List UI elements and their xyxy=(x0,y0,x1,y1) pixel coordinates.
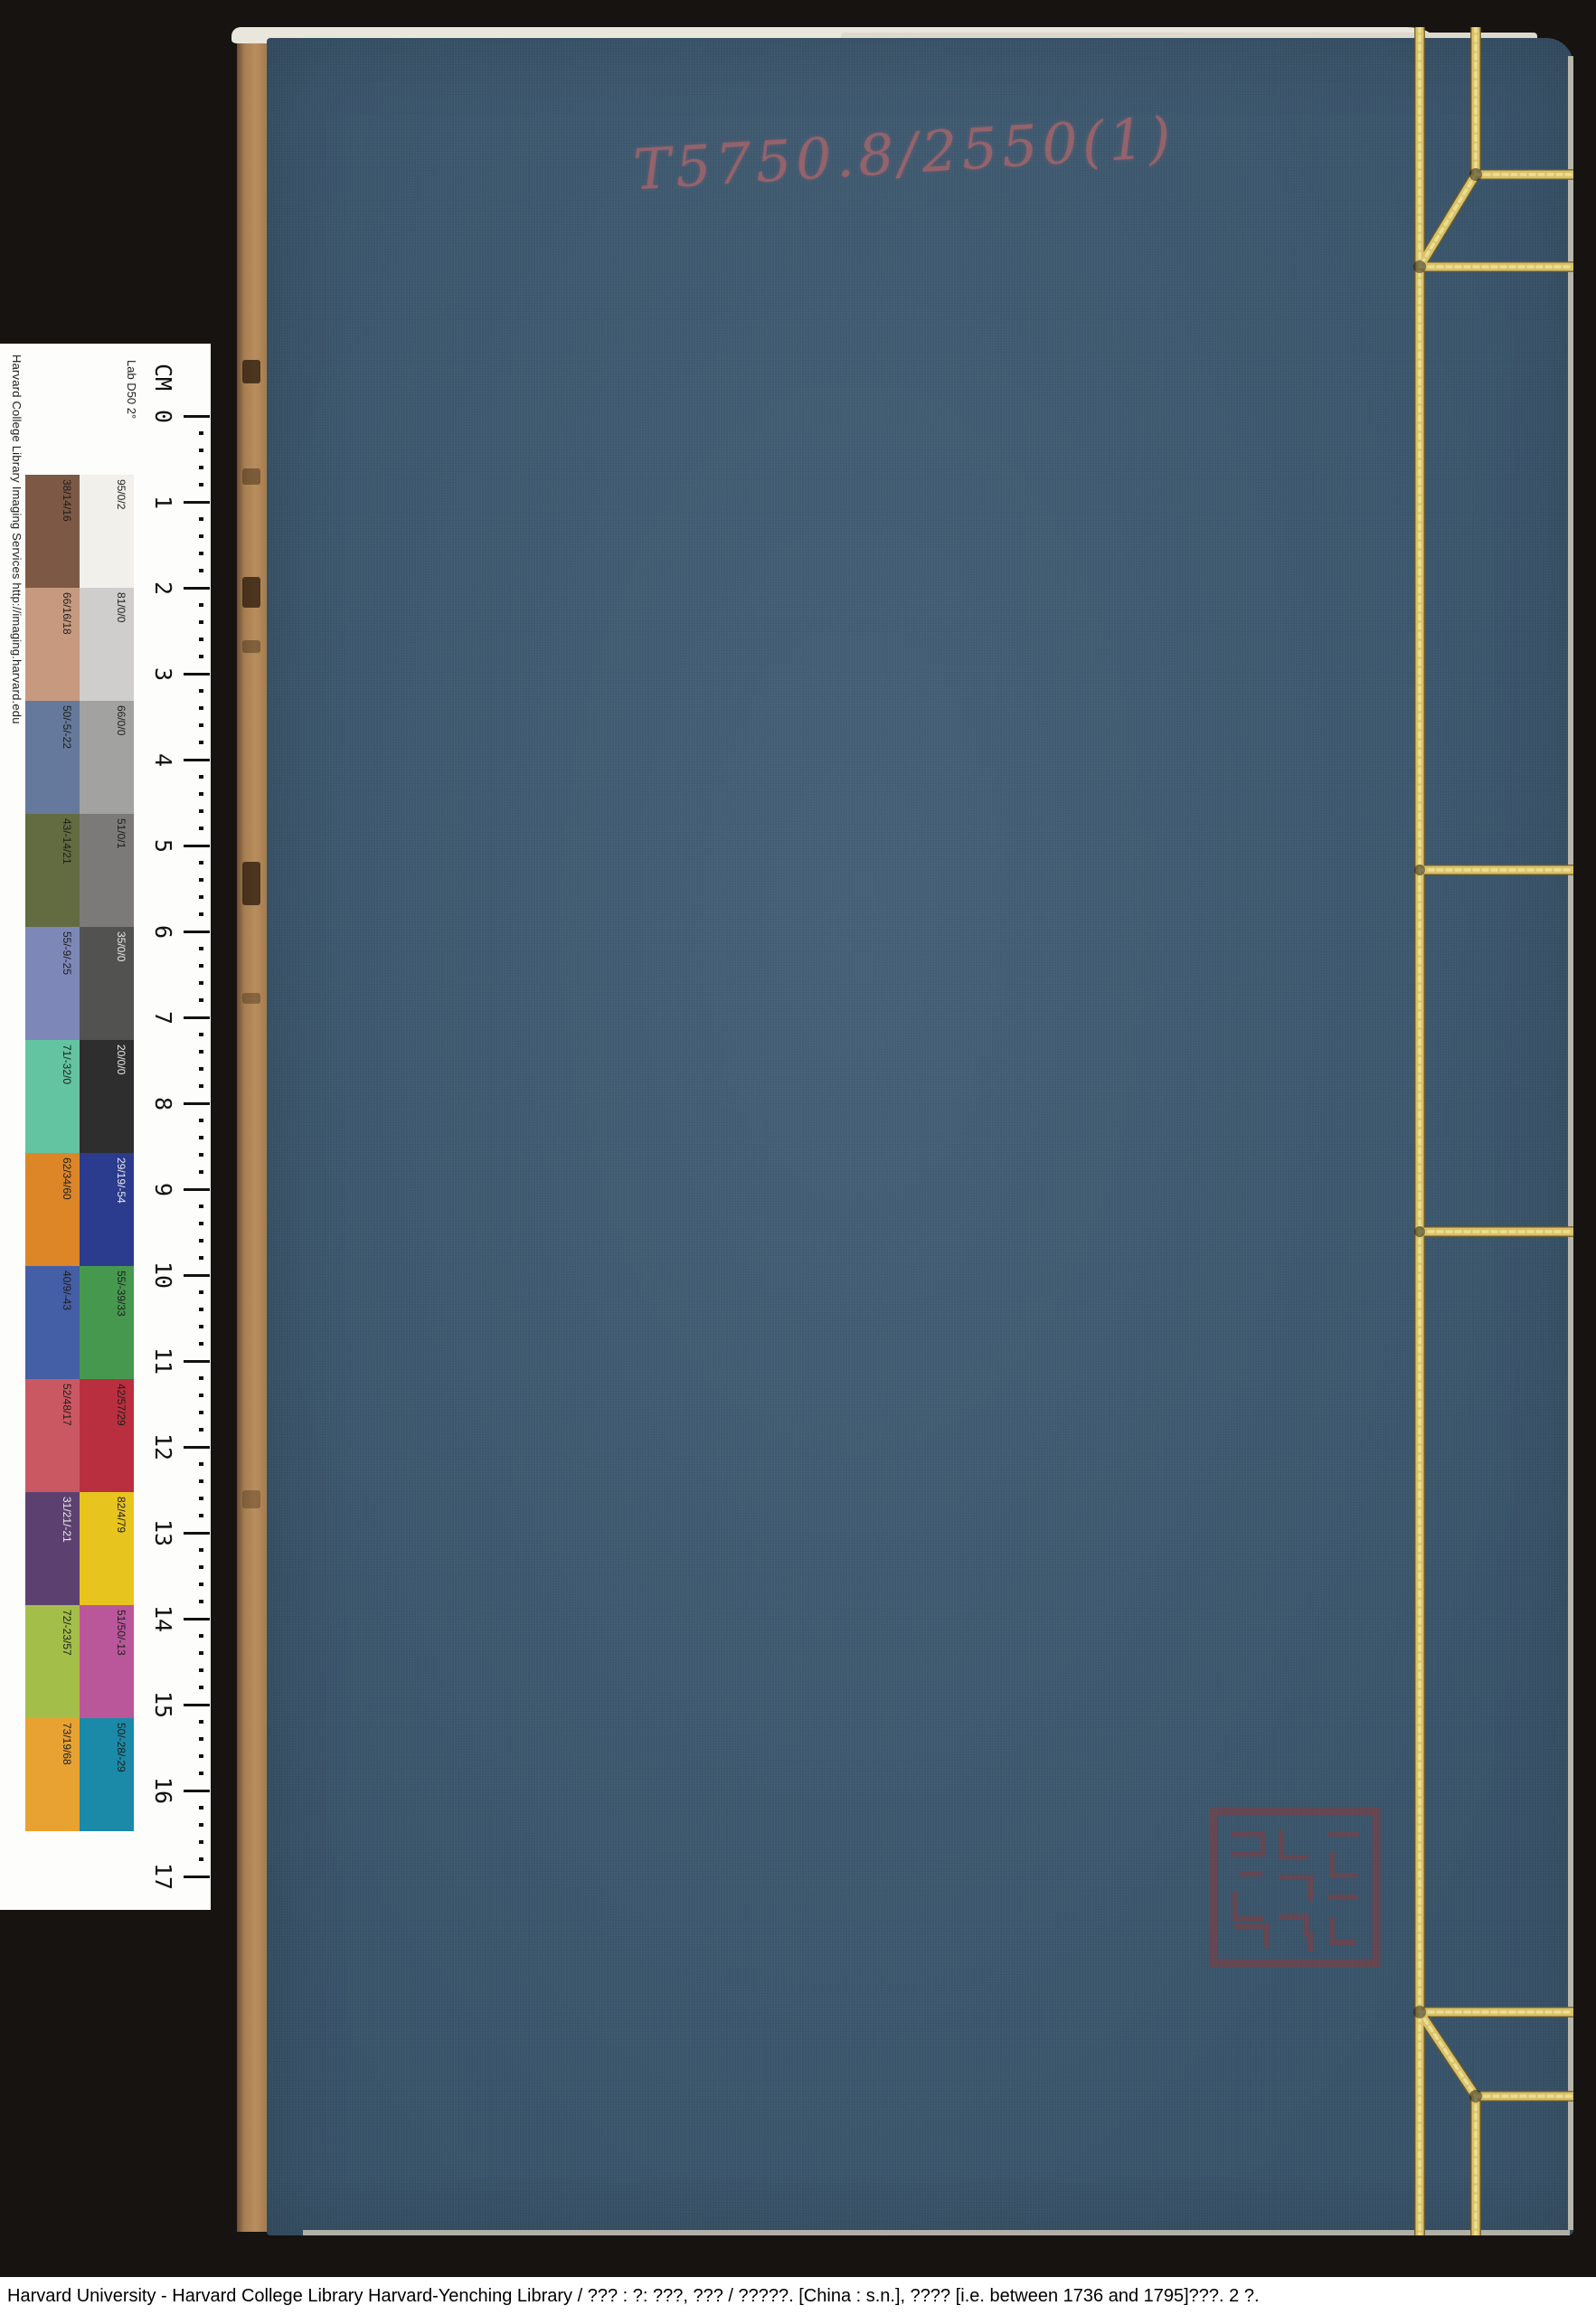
color-patch-label: 40/9/-43 xyxy=(61,1271,72,1310)
color-patch-label: 50/-28/-29 xyxy=(115,1723,127,1772)
ruler-tick-dot xyxy=(199,1170,203,1174)
ruler-tick-dot xyxy=(199,1857,203,1861)
ruler-tick-dot xyxy=(199,1548,203,1552)
ruler-tick-dot xyxy=(199,1840,203,1844)
ruler-number: 11 xyxy=(151,1347,175,1375)
ruler-tick-dot xyxy=(199,1033,203,1036)
ruler-tick-dot xyxy=(199,1308,203,1311)
color-patch-label: 55/-9/-25 xyxy=(61,931,72,975)
ruler-tick-dot xyxy=(199,1222,203,1225)
color-patch: 82/4/79 xyxy=(80,1492,134,1605)
ruler-tick-dot xyxy=(199,603,203,607)
ruler-tick xyxy=(184,415,210,418)
ruler-tick-dot xyxy=(199,947,203,950)
ruler-tick-dot xyxy=(199,1325,203,1328)
ruler-tick-dot xyxy=(199,1686,203,1689)
color-patch: 72/-23/57 xyxy=(25,1605,80,1718)
ruler-tick-dot xyxy=(199,655,203,658)
color-patch-label: 71/-32/0 xyxy=(61,1044,72,1084)
color-patch: 50/-5/-22 xyxy=(25,701,80,814)
ruler-tick-dot xyxy=(199,998,203,1002)
ruler-tick-dot xyxy=(199,1462,203,1466)
color-patch: 50/-28/-29 xyxy=(80,1718,134,1831)
ruler-number: 15 xyxy=(151,1691,175,1718)
color-patch: 51/0/1 xyxy=(80,814,134,927)
ruler-tick-dot xyxy=(199,1497,203,1500)
binding-threads xyxy=(226,27,1573,2235)
ruler-tick xyxy=(184,1102,210,1105)
ruler-tick-dot xyxy=(199,1342,203,1346)
ruler-tick-dot xyxy=(199,1754,203,1758)
ruler-unit-label: CM xyxy=(151,364,175,391)
ruler-tick-dot xyxy=(199,706,203,710)
color-patch-label: 73/19/68 xyxy=(61,1723,72,1765)
ruler-tick-dot xyxy=(199,1651,203,1655)
ruler-tick-dot xyxy=(199,1376,203,1380)
ruler-number: 5 xyxy=(151,839,175,853)
ruler-tick xyxy=(184,1360,210,1363)
color-patch: 31/21/-21 xyxy=(25,1492,80,1605)
caption-bar: Harvard University - Harvard College Lib… xyxy=(0,2277,1596,2315)
color-patch-label: 29/19/-54 xyxy=(115,1157,127,1204)
color-patch-label: 20/0/0 xyxy=(115,1044,127,1074)
ruler-tick-dot xyxy=(199,620,203,624)
ruler-tick-dot xyxy=(199,1256,203,1260)
ruler-number: 8 xyxy=(151,1097,175,1110)
ruler-number: 2 xyxy=(151,581,175,595)
ruler-tick-dot xyxy=(199,517,203,521)
ruler-tick-dot xyxy=(199,861,203,865)
color-patch: 55/-39/33 xyxy=(80,1266,134,1379)
color-patch: 38/14/16 xyxy=(25,475,80,588)
ruler-tick-dot xyxy=(199,1084,203,1088)
color-patch: 42/57/29 xyxy=(80,1379,134,1492)
ruler-tick-dot xyxy=(199,1634,203,1638)
ruler-number: 13 xyxy=(151,1519,175,1546)
digitized-scan: T5750.8/2550(1) xyxy=(0,0,1596,2315)
ruler-tick xyxy=(184,845,210,847)
ruler-tick-dot xyxy=(199,1668,203,1672)
ruler-tick-dot xyxy=(199,1050,203,1054)
ruler-number: 17 xyxy=(151,1863,175,1890)
ruler-tick xyxy=(184,1790,210,1792)
color-patch-label: 82/4/79 xyxy=(115,1497,127,1533)
color-patch-label: 66/0/0 xyxy=(115,705,127,735)
book: T5750.8/2550(1) xyxy=(226,27,1573,2235)
ruler-tick-dot xyxy=(199,449,203,452)
ruler-tick xyxy=(184,673,210,676)
ruler-tick xyxy=(184,931,210,933)
ruler-tick-dot xyxy=(199,895,203,899)
imaging-services-attribution: Harvard College Library Imaging Services… xyxy=(10,354,23,724)
ruler-tick-dot xyxy=(199,483,203,487)
ruler-tick xyxy=(184,1704,210,1706)
color-patch-label: 31/21/-21 xyxy=(61,1497,72,1543)
color-patch-label: 55/-39/33 xyxy=(115,1271,127,1317)
ruler-tick-dot xyxy=(199,552,203,555)
ruler-tick-dot xyxy=(199,981,203,985)
ruler-tick-dot xyxy=(199,534,203,538)
color-patch-label: 42/57/29 xyxy=(115,1384,127,1426)
ruler-tick-dot xyxy=(199,1290,203,1294)
color-patch-label: 35/0/0 xyxy=(115,931,127,961)
ruler-tick-dot xyxy=(199,1823,203,1827)
calibration-target: Harvard College Library Imaging Services… xyxy=(0,344,211,1910)
color-patch-label: 81/0/0 xyxy=(115,592,127,622)
color-patches: 38/14/1695/0/266/16/1881/0/050/-5/-2266/… xyxy=(25,475,134,1831)
color-patch: 95/0/2 xyxy=(80,475,134,588)
ruler-tick-dot xyxy=(199,878,203,882)
ruler-number: 16 xyxy=(151,1777,175,1804)
caption-text: Harvard University - Harvard College Lib… xyxy=(0,2286,1260,2307)
ruler-tick-dot xyxy=(199,1514,203,1517)
color-patch-label: 62/34/60 xyxy=(61,1157,72,1200)
ruler-tick xyxy=(184,1274,210,1277)
ruler-tick-dot xyxy=(199,964,203,968)
ruler-tick-dot xyxy=(199,689,203,693)
ruler-tick-dot xyxy=(199,1565,203,1569)
ruler-tick-dot xyxy=(199,1153,203,1157)
ruler-tick-dot xyxy=(199,638,203,641)
ruler-tick-dot xyxy=(199,723,203,727)
ruler-tick-dot xyxy=(199,827,203,830)
ruler-tick-dot xyxy=(199,1428,203,1432)
ruler-tick-dot xyxy=(199,1136,203,1139)
ruler-tick-dot xyxy=(199,1411,203,1414)
ruler-number: 10 xyxy=(151,1261,175,1289)
colorspace-label: Lab D50 2° xyxy=(125,360,137,419)
color-patch: 29/19/-54 xyxy=(80,1153,134,1266)
color-patch: 73/19/68 xyxy=(25,1718,80,1831)
ruler-tick-dot xyxy=(199,1772,203,1775)
ruler-tick-dot xyxy=(199,1239,203,1243)
color-patch: 20/0/0 xyxy=(80,1040,134,1153)
color-patch: 62/34/60 xyxy=(25,1153,80,1266)
ruler-number: 7 xyxy=(151,1011,175,1025)
ruler-tick xyxy=(184,587,210,590)
ruler-number: 1 xyxy=(151,496,175,509)
ruler-tick-dot xyxy=(199,1720,203,1724)
ruler-number: 14 xyxy=(151,1605,175,1632)
ruler-tick-dot xyxy=(199,1067,203,1071)
ruler-number: 12 xyxy=(151,1433,175,1460)
color-patch: 66/0/0 xyxy=(80,701,134,814)
color-patch-label: 43/-14/21 xyxy=(61,818,72,865)
ruler-tick xyxy=(184,501,210,504)
color-patch-label: 52/48/17 xyxy=(61,1384,72,1426)
ruler-number: 0 xyxy=(151,410,175,423)
ruler-tick-dot xyxy=(199,431,203,435)
ruler-number: 9 xyxy=(151,1183,175,1196)
ruler-tick-dot xyxy=(199,775,203,779)
ruler-tick-dot xyxy=(199,1479,203,1483)
ruler-tick xyxy=(184,1532,210,1535)
ruler-tick-dot xyxy=(199,792,203,796)
ruler-number: 4 xyxy=(151,753,175,767)
color-patch-label: 50/-5/-22 xyxy=(61,705,72,749)
color-patch: 43/-14/21 xyxy=(25,814,80,927)
ruler-tick-dot xyxy=(199,912,203,916)
ruler-tick-dot xyxy=(199,741,203,744)
ruler-tick-dot xyxy=(199,1583,203,1586)
color-patch: 66/16/18 xyxy=(25,588,80,701)
color-patch: 51/50/-13 xyxy=(80,1605,134,1718)
ruler-tick-dot xyxy=(199,1205,203,1208)
ruler-tick-dot xyxy=(199,569,203,572)
ruler-tick-dot xyxy=(199,1119,203,1122)
color-patch-label: 95/0/2 xyxy=(115,479,127,509)
ruler-tick xyxy=(184,1618,210,1620)
color-patch: 71/-32/0 xyxy=(25,1040,80,1153)
color-patch: 35/0/0 xyxy=(80,927,134,1040)
color-patch-label: 51/0/1 xyxy=(115,818,127,848)
color-patch-label: 66/16/18 xyxy=(61,592,72,635)
color-patch: 52/48/17 xyxy=(25,1379,80,1492)
ruler-tick xyxy=(184,1188,210,1191)
ruler-tick xyxy=(184,1016,210,1019)
ruler-tick-dot xyxy=(199,466,203,469)
ruler-tick-dot xyxy=(199,1600,203,1603)
color-patch-label: 38/14/16 xyxy=(61,479,72,522)
ruler-number: 3 xyxy=(151,667,175,681)
ruler-tick xyxy=(184,1876,210,1878)
color-patch-label: 72/-23/57 xyxy=(61,1610,72,1656)
color-patch: 55/-9/-25 xyxy=(25,927,80,1040)
ruler-tick-dot xyxy=(199,1737,203,1741)
ruler-tick-dot xyxy=(199,809,203,813)
ruler-tick-dot xyxy=(199,1806,203,1809)
color-patch-label: 51/50/-13 xyxy=(115,1610,127,1656)
ruler-tick-dot xyxy=(199,1394,203,1397)
color-patch: 40/9/-43 xyxy=(25,1266,80,1379)
ruler-tick xyxy=(184,759,210,761)
color-patch: 81/0/0 xyxy=(80,588,134,701)
ruler-tick xyxy=(184,1446,210,1449)
ruler-number: 6 xyxy=(151,925,175,939)
